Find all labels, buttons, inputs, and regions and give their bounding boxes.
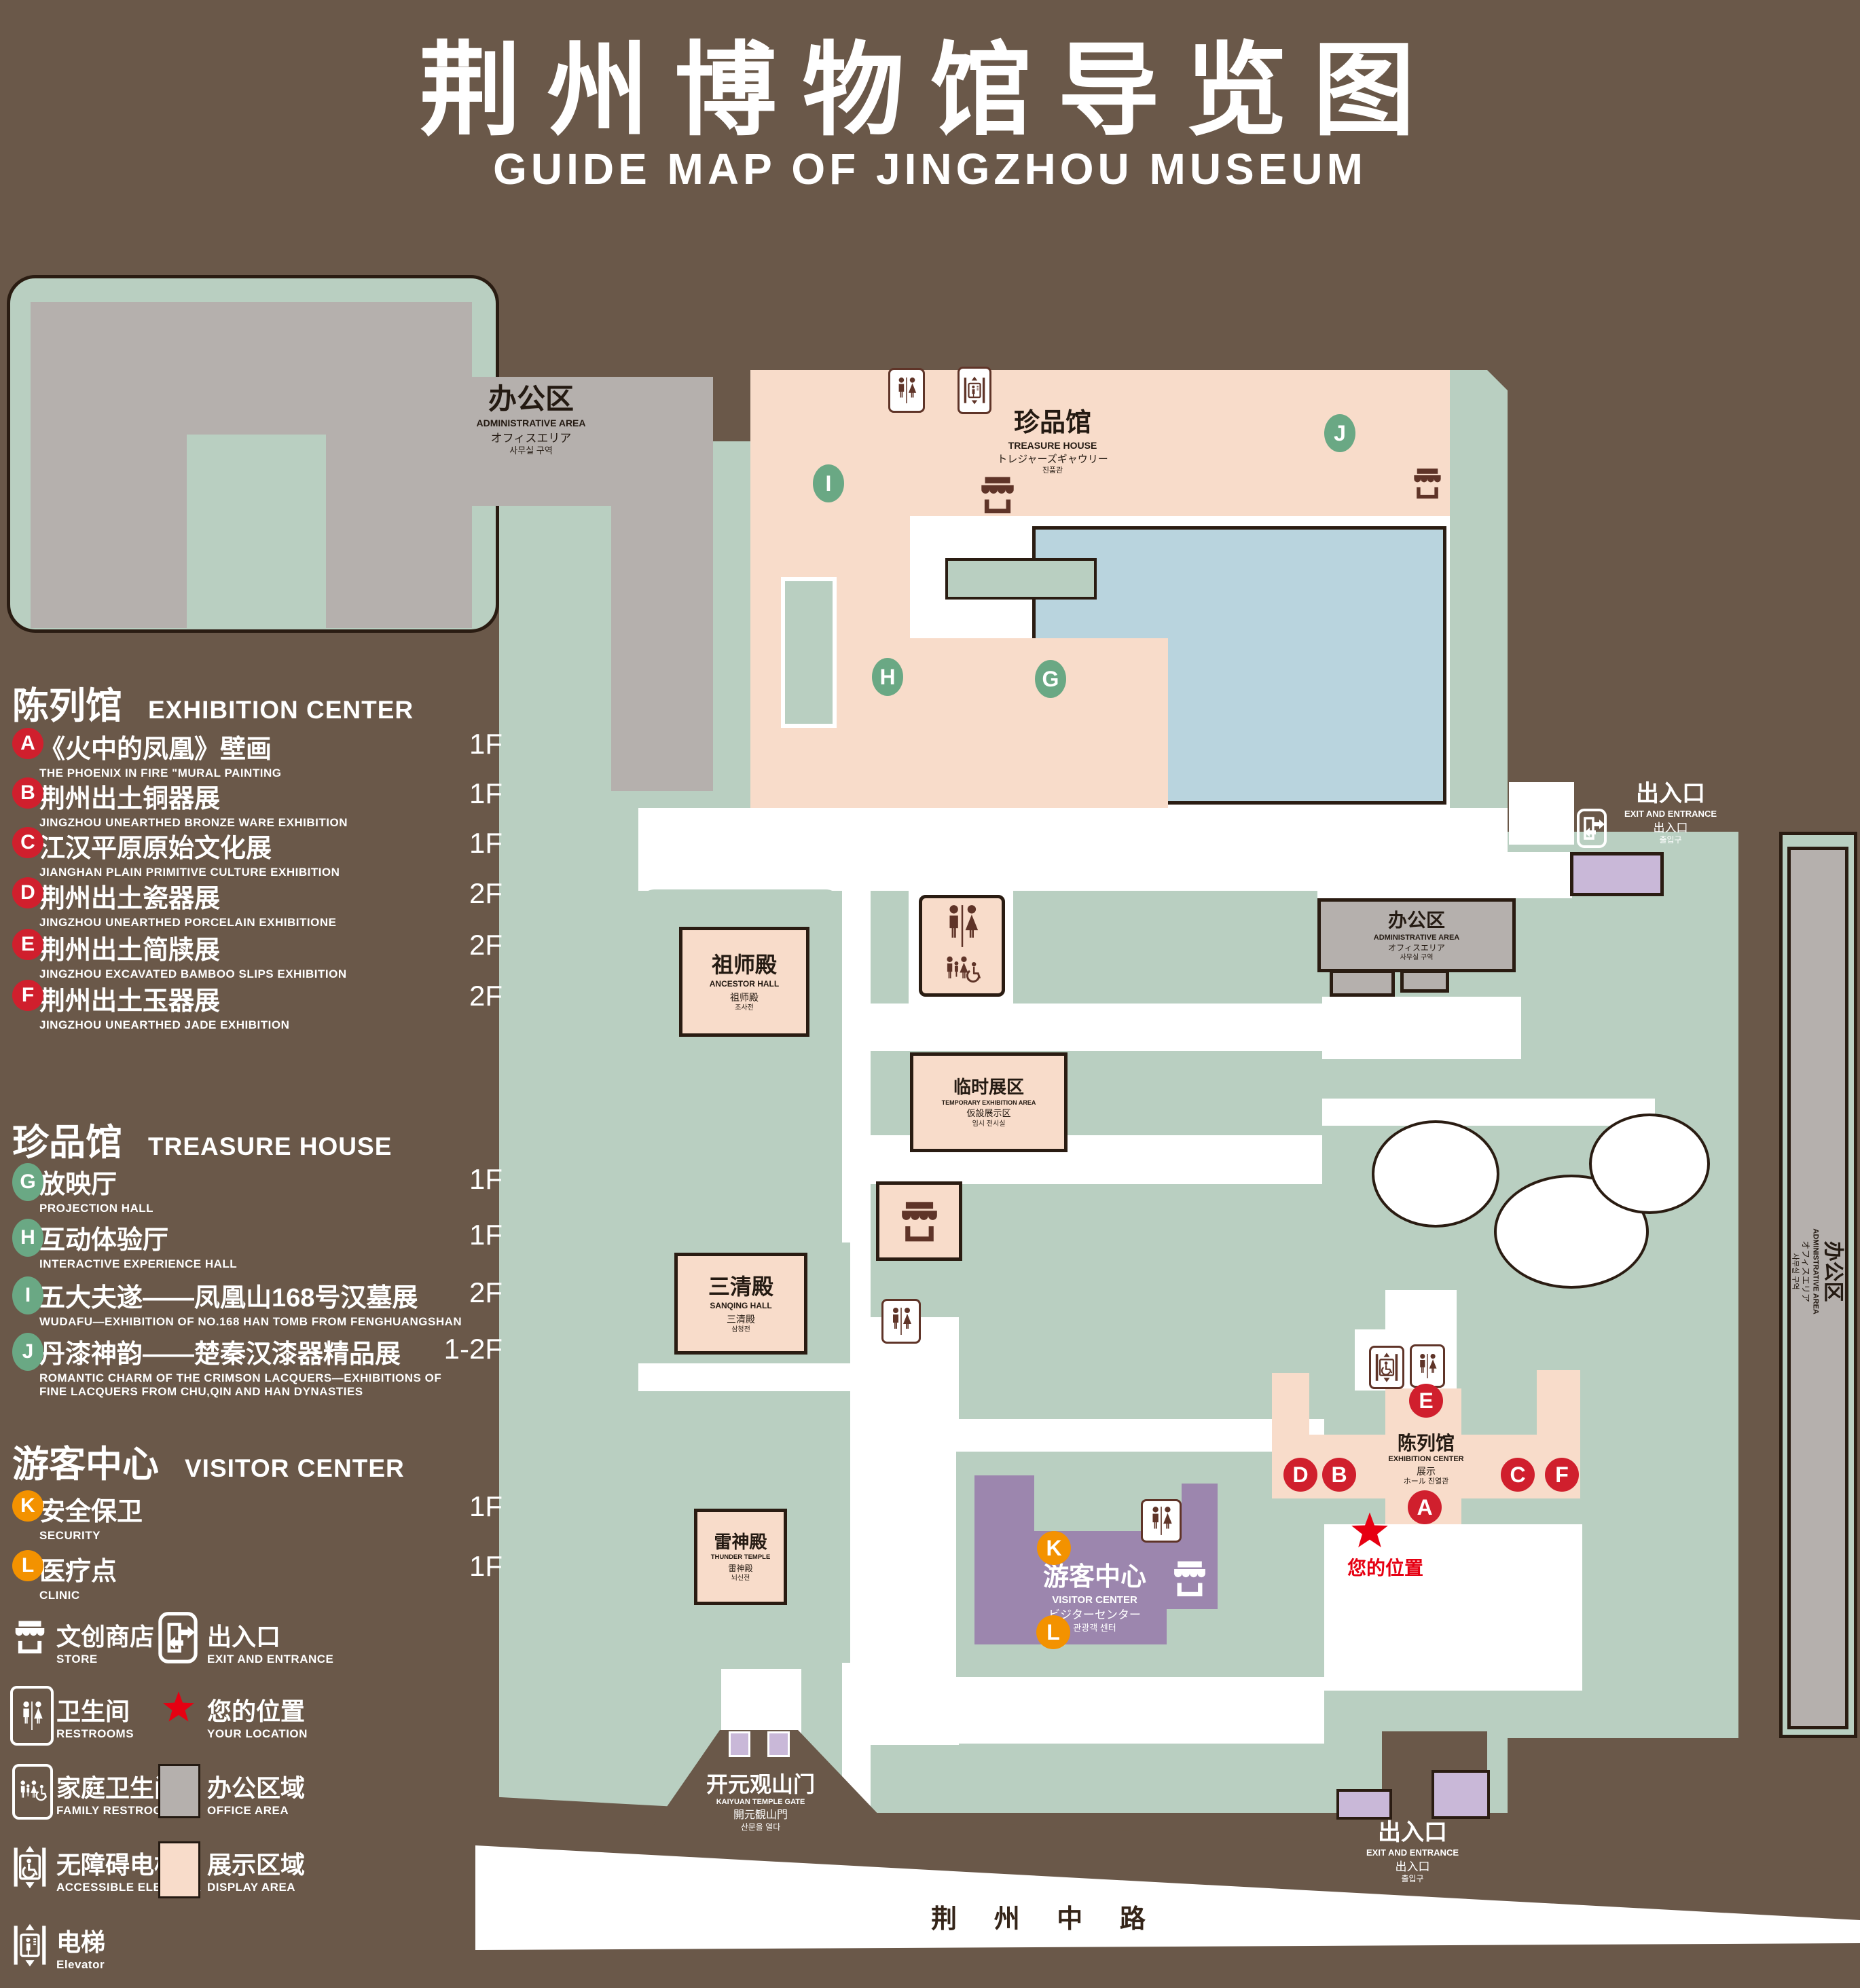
family-restroom-icon [944,953,981,989]
planter [781,577,837,728]
display-area-swatch [158,1841,200,1898]
your-location-star [1350,1511,1389,1551]
your-location-star [162,1689,196,1726]
path [871,1317,959,1745]
legend-exit: 出入口 EXIT AND ENTRANCE [207,1617,333,1666]
path [871,1004,1322,1051]
store-block [876,1181,962,1261]
path [871,1419,1324,1453]
marker-B[interactable]: B [1322,1458,1356,1492]
legend-item-D: D 荆州出土瓷器展 JINGZHOU UNEARTHED PORCELAIN E… [12,877,503,929]
legend-item-E: E 荆州出土简牍展 JINGZHOU EXCAVATED BAMBOO SLIP… [12,929,503,981]
building-admin-mid[interactable]: 办公区 ADMINISTRATIVE AREA オフィスエリア 사무실 구역 [1317,898,1516,972]
restroom-block [919,895,1005,997]
road-label: 荆 州 中 路 [869,1898,1222,1935]
path [1317,852,1572,898]
restroom-icon [1410,1344,1445,1388]
label-exit-top: 出入口 EXIT AND ENTRANCE 出入口 출입구 [1582,779,1759,845]
exit-icon [158,1610,198,1665]
store-icon [978,474,1017,516]
label-exit-bottom: 出入口 EXIT AND ENTRANCE 出入口 출입구 [1311,1818,1514,1884]
building-sanqing-hall[interactable]: 三清殿 SANQING HALL 三清殿 삼청전 [674,1253,807,1355]
restroom-icon [881,1299,921,1344]
store-icon [898,1199,941,1244]
path [959,1676,1324,1744]
marker-K[interactable]: K [1037,1531,1071,1565]
building-ancestor-hall[interactable]: 祖师殿 ANCESTOR HALL 祖师殿 조사전 [679,927,809,1037]
path [638,1361,871,1391]
label-gate: 开元观山门 KAIYUAN TEMPLE GATE 開元観山門 산문을 열다 [662,1771,859,1833]
legend-item-A: A 《火中的凤凰》壁画 THE PHOENIX IN FIRE "MURAL P… [12,728,503,780]
label-visitor-center: 游客中心 VISITOR CENTER ビジターセンター 관광객 센터 [993,1562,1197,1634]
restroom-icon [888,368,925,413]
building-temporary-exhibition[interactable]: 临时展区 TEMPORARY EXHIBITION AREA 仮設展示区 임시 … [910,1052,1068,1152]
legend-display: 展示区域 DISPLAY AREA [207,1845,305,1894]
your-location-label: 您的位置 [1311,1553,1460,1581]
gate-pillar [729,1731,750,1757]
office-area-swatch [158,1764,200,1818]
legend-item-H: H 互动体验厅 INTERACTIVE EXPERIENCE HALL 1F [12,1219,503,1271]
legend-header-visitor: 游客中心 VISITOR CENTER [12,1434,405,1488]
marker-E[interactable]: E [1409,1384,1443,1418]
legend-store: 文创商店 STORE [56,1617,154,1666]
legend-item-G: G 放映厅 PROJECTION HALL 1F [12,1163,503,1215]
legend-elevator: 电梯 Elevator [56,1923,105,1972]
restroom-icon [10,1686,54,1746]
gate-pillar [767,1731,790,1757]
label-treasure-house: 珍品馆 TREASURE HOUSE トレジャーズギャウリー 진품관 [951,407,1154,476]
building-ticket-booth [1432,1770,1490,1819]
restroom-icon [941,903,983,949]
label-admin-right: 办公区 ADMINISTRATIVE AREA オフィスエリア 사무실 구역 [1790,1173,1845,1370]
marker-A[interactable]: A [1408,1490,1442,1524]
legend-location: 您的位置 YOUR LOCATION [207,1692,308,1741]
store-icon [12,1615,48,1659]
legend-header-treasure: 珍品馆 TREASURE HOUSE [12,1112,392,1166]
marker-I[interactable]: I [813,464,844,502]
legend-restrooms: 卫生间 RESTROOMS [56,1692,134,1741]
legend-item-B: B 荆州出土铜器展 JINGZHOU UNEARTHED BRONZE WARE… [12,777,503,830]
legend-item-I: I 五大夫遂——凤凰山168号汉墓展 WUDAFU—EXHIBITION OF … [12,1276,503,1329]
path [1322,997,1521,1059]
legend-item-C: C 江汉平原原始文化展 JIANGHAN PLAIN PRIMITIVE CUL… [12,827,503,879]
label-admin-top-left: 办公区 ADMINISTRATIVE AREA オフィスエリア 사무실 구역 [429,382,633,457]
marker-J[interactable]: J [1324,414,1355,452]
store-icon [1171,1558,1209,1600]
marker-F[interactable]: F [1545,1458,1579,1492]
legend-office: 办公区域 OFFICE AREA [207,1769,305,1818]
building-ticket-booth [1336,1789,1392,1820]
page-subtitle: GUIDE MAP OF JINGZHOU MUSEUM [0,144,1860,194]
building-admin-right[interactable]: 办公区 ADMINISTRATIVE AREA オフィスエリア 사무실 구역 [1787,847,1848,1729]
building-ticket-booth [1570,852,1664,896]
planter [945,558,1097,600]
elevator-icon [12,1917,48,1974]
legend-item-L: L 医疗点 CLINIC 1F [12,1550,503,1602]
marker-D[interactable]: D [1283,1458,1317,1492]
accessible-elevator-icon [12,1840,48,1894]
exit-path [1509,782,1574,845]
building-admin-mid-wing [1330,970,1395,997]
accessible-elevator-icon [1369,1346,1404,1389]
building-thunder-temple[interactable]: 雷神殿 THUNDER TEMPLE 雷神殿 뇌신전 [694,1509,787,1605]
legend-item-F: F 荆州出土玉器展 JINGZHOU UNEARTHED JADE EXHIBI… [12,980,503,1032]
marker-G[interactable]: G [1035,660,1066,698]
legend-item-K: K 安全保卫 SECURITY 1F [12,1490,503,1543]
restroom-icon [1141,1499,1182,1543]
marker-H[interactable]: H [872,658,903,696]
elevator-icon [958,367,991,414]
garden-pond [1372,1120,1499,1228]
garden-path [1322,1099,1655,1126]
garden-pond [1589,1113,1710,1214]
legend-header-exhibition: 陈列馆 EXHIBITION CENTER [12,676,414,729]
building-admin-mid-wing [1400,970,1449,993]
store-icon [1411,465,1444,502]
family-restroom-icon [12,1764,53,1820]
marker-L[interactable]: L [1036,1615,1070,1649]
marker-C[interactable]: C [1501,1458,1535,1492]
page-title: 荆州博物馆导览图 [0,8,1860,155]
legend-item-J: J 丹漆神韵——楚秦汉漆器精品展 ROMANTIC CHARM OF THE C… [12,1333,503,1399]
